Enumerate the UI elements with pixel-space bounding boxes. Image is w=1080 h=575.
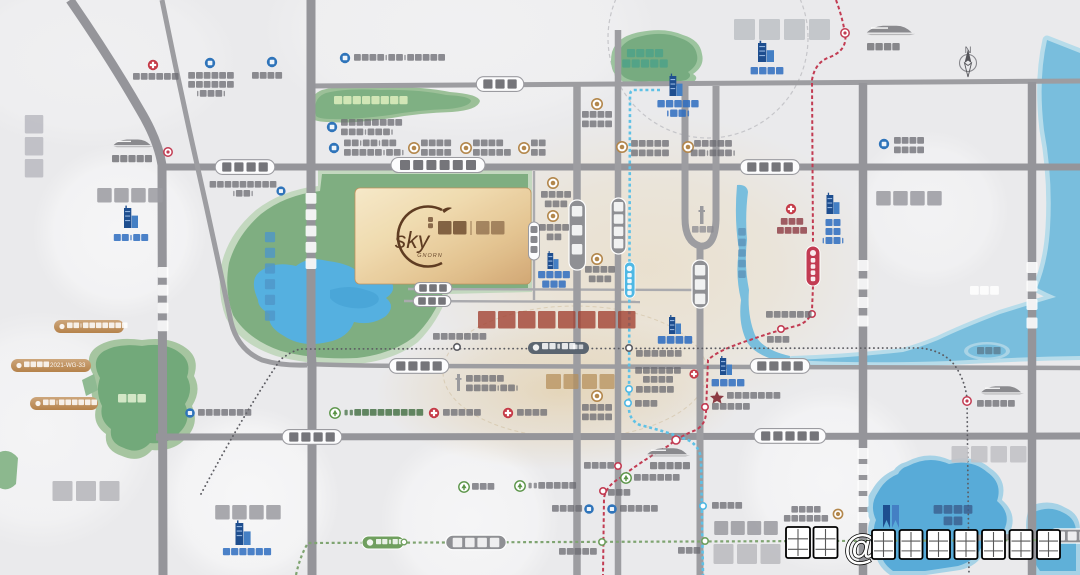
svg-text:2021-WG-33: 2021-WG-33 xyxy=(50,362,86,369)
svg-text:GNORN: GNORN xyxy=(417,253,442,259)
svg-text:sky: sky xyxy=(395,227,431,253)
